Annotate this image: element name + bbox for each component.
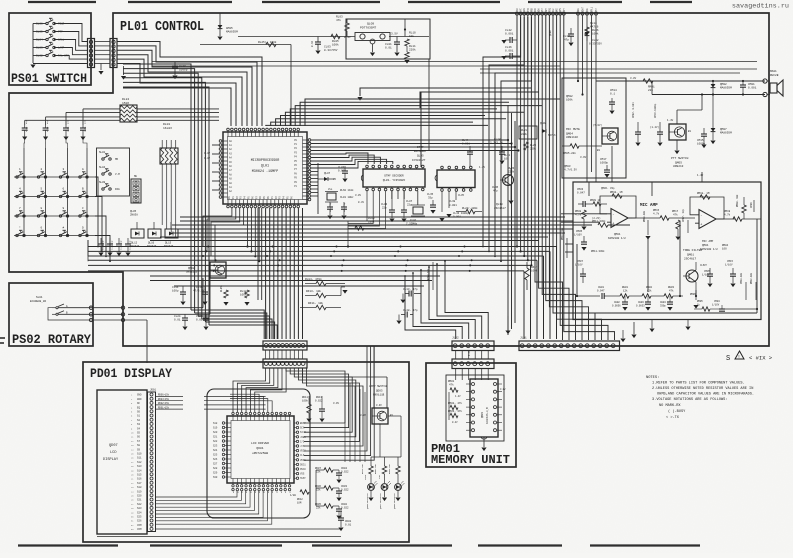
svg-text:0.022: 0.022	[341, 471, 349, 474]
svg-text:S18: S18	[213, 422, 218, 425]
svg-text:1.4V: 1.4V	[667, 119, 674, 122]
svg-text:RL01: RL01	[163, 123, 170, 126]
svg-text:CM07- 33p: CM07- 33p	[682, 209, 685, 222]
svg-text:QD03: QD03	[376, 390, 383, 393]
svg-text:(2.2V): (2.2V)	[592, 217, 601, 220]
svg-text:GND: GND	[137, 394, 142, 397]
svg-text:RM01: RM01	[448, 380, 455, 383]
svg-text:10M: 10M	[297, 502, 302, 505]
svg-text:RD04>15k: RD04>15k	[158, 398, 170, 401]
svg-text:1/16V: 1/16V	[575, 264, 583, 267]
svg-text:RUC2B: RUC2B	[770, 74, 779, 77]
svg-text:S29: S29	[213, 472, 218, 475]
svg-text:1.4V: 1.4V	[455, 395, 461, 398]
svg-text:100p: 100p	[172, 290, 179, 293]
svg-text:S3: S3	[137, 423, 141, 426]
svg-text:CL03: CL03	[338, 166, 345, 169]
svg-text:RD08-150: RD08-150	[388, 464, 391, 474]
svg-text:47p: 47p	[564, 39, 569, 42]
svg-text:QM03: QM03	[564, 165, 571, 168]
svg-text:RM15: RM15	[653, 209, 660, 212]
svg-text:0.001: 0.001	[453, 216, 461, 219]
svg-text:SL01: SL01	[36, 296, 43, 299]
svg-text:RM11-330k: RM11-330k	[591, 250, 605, 253]
svg-text:MA8055M: MA8055M	[720, 87, 732, 90]
svg-text:QL08: QL08	[540, 122, 547, 125]
svg-text:QM08: QM08	[188, 267, 195, 270]
svg-text:PS01 SWITCH: PS01 SWITCH	[11, 72, 87, 86]
svg-text:CM07: CM07	[577, 260, 584, 263]
svg-text:0.047: 0.047	[597, 290, 605, 293]
svg-text:22k: 22k	[316, 489, 321, 492]
svg-text:3.0V: 3.0V	[500, 388, 506, 391]
svg-text:3.5V: 3.5V	[391, 33, 398, 36]
svg-text:0.001: 0.001	[462, 143, 470, 146]
svg-text:3.9V: 3.9V	[333, 402, 340, 405]
svg-text:S27: S27	[213, 463, 218, 466]
svg-text:0.001: 0.001	[449, 204, 457, 207]
svg-text:QL10: QL10	[496, 203, 503, 206]
svg-text:RH01: RH01	[622, 286, 629, 289]
svg-text:MA716: MA716	[548, 134, 556, 137]
svg-text:S22: S22	[137, 503, 142, 506]
svg-text:OSC1: OSC1	[300, 463, 306, 466]
svg-text:DTMF DECODER: DTMF DECODER	[384, 175, 404, 178]
svg-text:3.9V: 3.9V	[580, 156, 587, 159]
svg-text:CL31- 47p: CL31- 47p	[46, 119, 49, 132]
svg-text:CL04 3p: CL04 3p	[343, 202, 346, 212]
svg-text:S23: S23	[137, 507, 142, 510]
svg-text:RH03: RH03	[668, 286, 675, 289]
svg-text:100k: 100k	[531, 269, 538, 273]
svg-text:(1.4V): (1.4V)	[650, 126, 660, 129]
svg-text:RM05: RM05	[697, 300, 703, 303]
svg-text:22p: 22p	[382, 207, 387, 210]
svg-text:RZ13- 10k: RZ13- 10k	[306, 289, 321, 293]
svg-text:CLK: CLK	[300, 454, 305, 457]
svg-text:VSS: VSS	[300, 473, 305, 476]
svg-text:0.0056: 0.0056	[612, 305, 621, 308]
svg-text:MA8055M: MA8055M	[720, 132, 732, 135]
svg-text:RL60 110k: RL60 110k	[340, 189, 354, 192]
svg-text:22k: 22k	[648, 88, 653, 92]
svg-text:100: 100	[722, 248, 727, 251]
svg-text:MA716: MA716	[590, 26, 599, 29]
svg-text:BUSY: BUSY	[300, 422, 306, 425]
svg-text:COM: COM	[137, 528, 142, 531]
svg-text:S21: S21	[213, 436, 218, 439]
svg-text:RL05-: RL05-	[220, 284, 223, 292]
svg-text:S24: S24	[137, 511, 142, 514]
svg-text:DAT: DAT	[582, 6, 585, 11]
svg-text:+: +	[700, 223, 702, 227]
svg-text:220k: 220k	[521, 133, 528, 136]
svg-text:QM01: QM01	[687, 254, 694, 257]
svg-text:100k: 100k	[332, 42, 339, 46]
svg-text:< >-TX: < >-TX	[666, 415, 680, 420]
svg-text:RD12: RD12	[297, 498, 303, 501]
svg-text:QD05-WPS2312S: QD05-WPS2312S	[366, 493, 369, 509]
svg-text:QL03- YC3530ZF: QL03- YC3530ZF	[383, 179, 406, 182]
svg-text:RL21: RL21	[521, 129, 528, 132]
svg-text:QM02: QM02	[566, 95, 573, 98]
svg-text:S22: S22	[213, 440, 218, 443]
svg-text:CL07: CL07	[406, 200, 413, 203]
svg-text:QL07: QL07	[324, 172, 331, 175]
svg-text:UN9111K: UN9111K	[566, 136, 578, 139]
svg-text:CL13- 47p: CL13- 47p	[403, 288, 418, 291]
svg-text:MO: MO	[115, 158, 119, 161]
svg-text:PL01 CONTROL: PL01 CONTROL	[120, 19, 204, 35]
svg-text:10k: 10k	[504, 157, 509, 161]
svg-text:S10: S10	[137, 453, 142, 456]
svg-text:0.33/55V: 0.33/55V	[589, 42, 602, 46]
svg-text:NO MARK-RX: NO MARK-RX	[659, 404, 681, 408]
svg-text:QM01: QM01	[614, 233, 621, 236]
svg-text:0.001: 0.001	[505, 50, 514, 53]
svg-text:SL02: SL02	[36, 55, 43, 58]
svg-text:CM15: CM15	[697, 139, 704, 142]
svg-text:22k: 22k	[316, 471, 321, 474]
svg-text:33p: 33p	[428, 197, 433, 200]
svg-text:NC: NC	[137, 402, 141, 405]
svg-text:CM04: CM04	[714, 300, 720, 303]
svg-text:RM17: RM17	[672, 210, 679, 213]
svg-text:0.01: 0.01	[345, 524, 352, 527]
svg-text:RM05-22k: RM05-22k	[563, 151, 576, 155]
svg-text:SL04: SL04	[36, 39, 43, 42]
svg-text:RM18- 1M: RM18- 1M	[697, 192, 710, 195]
svg-text:22k: 22k	[316, 507, 321, 510]
svg-text:OSC0: OSC0	[300, 468, 306, 471]
svg-text:S7: S7	[137, 440, 141, 443]
svg-text:QD04-WPS2312S: QD04-WPS2312S	[379, 493, 382, 509]
svg-text:-: -	[700, 215, 702, 219]
svg-text:B1: B1	[597, 149, 601, 152]
svg-text:XL01 10Hz: XL01 10Hz	[340, 196, 354, 199]
svg-text:2SC4617: 2SC4617	[684, 258, 696, 261]
svg-text:MIC AMP: MIC AMP	[640, 204, 658, 208]
svg-text:2.UNLESS OTHERWISE NOTED RESIS: 2.UNLESS OTHERWISE NOTED RESISTOR VALUES…	[652, 387, 753, 391]
svg-text:S14: S14	[137, 469, 142, 472]
svg-text:CL44: CL44	[462, 139, 469, 142]
svg-text:CL26: CL26	[196, 315, 203, 318]
svg-text:CL30- 47p: CL30- 47p	[67, 119, 70, 132]
svg-text:( )-BUSY: ( )-BUSY	[668, 409, 686, 414]
svg-text:S0: S0	[137, 411, 141, 414]
svg-text:47p: 47p	[493, 190, 498, 193]
svg-text:S15: S15	[137, 474, 142, 477]
svg-text:0.01: 0.01	[385, 46, 392, 49]
svg-text:V-M: V-M	[115, 173, 120, 176]
svg-text:S21: S21	[137, 499, 142, 502]
svg-text:1000p: 1000p	[600, 162, 608, 165]
svg-text:CL32- 47p: CL32- 47p	[25, 119, 28, 132]
svg-text:CD01: CD01	[345, 520, 352, 523]
svg-text:LAMP: LAMP	[364, 474, 367, 480]
svg-text:1.4V: 1.4V	[479, 166, 486, 169]
svg-text:1/16V: 1/16V	[574, 233, 582, 237]
svg-text:47k: 47k	[669, 290, 674, 293]
svg-text:CL43 1000p: CL43 1000p	[453, 212, 469, 215]
svg-text:PD01 DISPLAY: PD01 DISPLAY	[90, 367, 172, 381]
svg-text:0.022: 0.022	[341, 507, 349, 510]
svg-text:S25: S25	[213, 454, 218, 457]
svg-text:VDD1: VDD1	[300, 459, 306, 462]
svg-text:M30624 -1GMFP: M30624 -1GMFP	[252, 170, 278, 174]
svg-text:1.4V: 1.4V	[697, 174, 704, 177]
svg-text:UN9111J: UN9111J	[186, 271, 198, 274]
svg-text:SI/O: SI/O	[300, 431, 306, 434]
svg-text:3.VOLTAGE NOTATIONS ARE AS FOL: 3.VOLTAGE NOTATIONS ARE AS FOLLOWS:	[652, 398, 727, 402]
svg-text:(5.0V): (5.0V)	[593, 124, 603, 127]
svg-text:UN9111B: UN9111B	[373, 394, 385, 397]
svg-text:RL22(-100k: RL22(-100k	[462, 206, 478, 210]
svg-text:2SC4617: 2SC4617	[494, 207, 506, 210]
svg-text:NJM2100 1/2: NJM2100 1/2	[700, 247, 718, 251]
svg-text:S4: S4	[137, 427, 141, 430]
svg-text:RM08: RM08	[575, 210, 582, 213]
svg-text:OHMS,AND CAPACITOR VALUES ARE: OHMS,AND CAPACITOR VALUES ARE IN MICROFA…	[657, 393, 754, 397]
svg-text:S11: S11	[137, 457, 142, 460]
svg-text:RM04: RM04	[722, 244, 729, 247]
svg-text:100k: 100k	[566, 98, 573, 102]
svg-text:CL28: CL28	[494, 138, 501, 141]
svg-text:JL02: JL02	[452, 337, 459, 340]
svg-text:0.4V: 0.4V	[358, 201, 365, 204]
svg-text:0.4V: 0.4V	[452, 421, 458, 424]
svg-text:47k: 47k	[336, 18, 341, 22]
svg-text:CM13-10k: CM13-10k	[740, 272, 743, 284]
svg-text:RM19: RM19	[724, 210, 731, 213]
svg-text:VDD2: VDD2	[300, 450, 306, 453]
svg-text:QD01: QD01	[256, 447, 263, 450]
svg-text:savagedtins.ru: savagedtins.ru	[732, 3, 789, 11]
svg-text:TONE FILTER: TONE FILTER	[683, 249, 702, 252]
svg-text:B1: B1	[390, 414, 394, 417]
svg-text:LCD: LCD	[378, 474, 381, 479]
svg-text:< #IX >: < #IX >	[749, 355, 772, 362]
svg-text:CH02: CH02	[614, 301, 620, 304]
svg-text:0.047: 0.047	[577, 192, 585, 195]
svg-text:1/16V: 1/16V	[712, 304, 720, 307]
svg-text:S24: S24	[213, 449, 218, 452]
svg-text:CD04: CD04	[341, 467, 348, 470]
svg-text:S23: S23	[213, 445, 218, 448]
svg-text:QM04: QM04	[566, 133, 573, 136]
svg-text:1.4V: 1.4V	[468, 350, 471, 356]
svg-text:MICROPROCESSOR: MICROPROCESSOR	[251, 159, 280, 163]
svg-text:DTMF: DTMF	[417, 146, 424, 149]
svg-text:CM03: CM03	[577, 188, 584, 191]
svg-text:CL45: CL45	[492, 186, 499, 189]
svg-text:RZ00-10k: RZ00-10k	[427, 268, 430, 280]
svg-text:CL30 47p: CL30 47p	[102, 240, 105, 250]
svg-text:0.001: 0.001	[505, 33, 514, 36]
svg-text:RL06: RL06	[592, 29, 599, 32]
svg-text:!: !	[738, 354, 741, 360]
svg-text:-: -	[612, 214, 614, 218]
svg-text:16L0X: 16L0X	[163, 127, 172, 130]
svg-text:0.1: 0.1	[610, 93, 615, 96]
svg-text:S19: S19	[137, 490, 142, 493]
svg-text:QD07: QD07	[109, 444, 118, 448]
svg-text:CL38: CL38	[449, 200, 456, 203]
svg-text:LAMP SWITCH: LAMP SWITCH	[369, 385, 387, 388]
svg-text:QL09: QL09	[367, 23, 374, 26]
svg-text:uPD7225GB: uPD7225GB	[252, 452, 268, 455]
svg-text:RM23- 10k: RM23- 10k	[561, 227, 564, 240]
svg-text:RH02: RH02	[646, 286, 653, 289]
svg-text:S25: S25	[137, 516, 142, 519]
svg-text:NJM2100 1/2: NJM2100 1/2	[608, 236, 626, 240]
svg-text:100k: 100k	[592, 32, 599, 36]
svg-text:RL84- 470k: RL84- 470k	[305, 277, 322, 281]
svg-text:VD: VD	[333, 178, 337, 181]
svg-text:RM13-10k: RM13-10k	[643, 210, 646, 222]
svg-text:QD06-WPS2312S: QD06-WPS2312S	[393, 493, 396, 509]
svg-text:COM: COM	[137, 524, 142, 527]
svg-text:2N838: 2N838	[130, 214, 138, 217]
svg-text:0.01: 0.01	[174, 319, 181, 322]
svg-text:SL01: SL01	[99, 151, 106, 154]
svg-text:UN9213: UN9213	[673, 165, 684, 168]
svg-text:S9: S9	[137, 448, 141, 451]
svg-text:LCD: LCD	[110, 451, 116, 455]
svg-text:EQ: EQ	[137, 406, 141, 409]
svg-text:QL01: QL01	[261, 165, 269, 169]
svg-text:S17: S17	[137, 482, 142, 485]
svg-text:SL05: SL05	[36, 31, 43, 34]
svg-text:1.4V: 1.4V	[204, 152, 211, 155]
svg-text:S1: S1	[137, 415, 141, 418]
svg-text:NOTES:: NOTES:	[646, 376, 659, 380]
svg-text:PAG: PAG	[115, 188, 120, 191]
svg-text:QM05: QM05	[675, 162, 682, 165]
svg-text:RL31: RL31	[504, 154, 511, 157]
svg-text:S20: S20	[213, 431, 218, 434]
svg-text:B1: B1	[688, 130, 692, 133]
svg-text:CL06: CL06	[381, 203, 388, 206]
svg-text:CL39- 47p: CL39- 47p	[84, 119, 87, 132]
svg-text:CM09: CM09	[750, 202, 753, 208]
svg-text:S5: S5	[137, 432, 141, 435]
svg-text:/CS: /CS	[300, 445, 305, 448]
svg-text:0.01: 0.01	[196, 319, 203, 322]
svg-text:CL36: CL36	[196, 286, 203, 289]
svg-text:RD01>15k: RD01>15k	[158, 406, 170, 409]
svg-text:CM05: CM05	[704, 270, 711, 273]
svg-text:XL01: XL01	[410, 219, 417, 222]
svg-text:S30: S30	[213, 476, 218, 479]
svg-text:RZ17: RZ17	[531, 266, 538, 269]
svg-text:RL26: RL26	[508, 167, 515, 170]
svg-text:S2: S2	[137, 419, 141, 422]
svg-text:S18: S18	[137, 486, 142, 489]
svg-text:MEMORY UNIT: MEMORY UNIT	[431, 454, 510, 467]
svg-text:MIC AMP: MIC AMP	[702, 240, 714, 243]
svg-text:0.001: 0.001	[748, 87, 757, 90]
svg-text:0.1F: 0.1F	[311, 40, 314, 47]
svg-text:RD11: RD11	[302, 396, 309, 399]
svg-text:PLL: PLL	[591, 6, 594, 11]
svg-text:S12: S12	[137, 461, 142, 464]
svg-text:QL05: QL05	[130, 210, 137, 213]
svg-text:RD10-150: RD10-150	[361, 464, 364, 474]
svg-text:SL04: SL04	[99, 166, 106, 169]
svg-text:RM12-10k: RM12-10k	[750, 272, 753, 284]
svg-text:100k: 100k	[302, 400, 309, 403]
svg-text:CL50?: CL50?	[700, 264, 708, 267]
svg-text:S16: S16	[137, 478, 142, 481]
svg-text:S8: S8	[137, 444, 141, 447]
svg-text:/RES: /RES	[300, 436, 306, 439]
svg-text:CL35: CL35	[458, 194, 465, 197]
svg-text:CL35: CL35	[427, 193, 434, 196]
svg-text:RD02>15k: RD02>15k	[158, 402, 170, 405]
svg-text:0.33/55V: 0.33/55V	[324, 48, 338, 52]
svg-text:330p: 330p	[660, 305, 666, 308]
svg-text:10k: 10k	[409, 34, 414, 38]
svg-text:RM09 1k: RM09 1k	[590, 199, 601, 202]
svg-text:RL20: RL20	[530, 144, 537, 147]
svg-text:EC09E08_06: EC09E08_06	[30, 300, 47, 303]
svg-text:SL09: SL09	[99, 181, 106, 184]
svg-text:JD01: JD01	[150, 389, 157, 392]
svg-text:MIC MUTE: MIC MUTE	[566, 128, 580, 131]
svg-text:RM20- 10k: RM20- 10k	[736, 194, 739, 207]
svg-text:QM07: QM07	[720, 128, 727, 131]
svg-text:RL09: RL09	[368, 217, 375, 220]
svg-text:0.0033: 0.0033	[636, 305, 645, 308]
svg-text:CM15: CM15	[727, 260, 734, 263]
svg-text:MA01: MA01	[770, 70, 777, 73]
svg-text:RZ11- 10k: RZ11- 10k	[308, 301, 323, 305]
svg-text:S6: S6	[137, 436, 141, 439]
svg-text:2.3/5.3V: 2.3/5.3V	[490, 141, 503, 145]
svg-text:1/16V: 1/16V	[725, 264, 733, 267]
svg-text:C/D: C/D	[300, 440, 305, 443]
svg-text:QL05: QL05	[417, 155, 424, 158]
svg-text:47k: 47k	[449, 383, 454, 387]
svg-text:SL06: SL06	[36, 23, 43, 26]
svg-text:LCD DRIVER: LCD DRIVER	[251, 442, 269, 445]
svg-text:CL31 47p: CL31 47p	[111, 240, 114, 250]
svg-text:S28: S28	[213, 467, 218, 470]
svg-text:4.7/6.3V: 4.7/6.3V	[564, 168, 577, 172]
svg-text:CL32 47p: CL32 47p	[120, 240, 123, 250]
svg-text:QM02: QM02	[720, 83, 727, 86]
svg-text:CH04: CH04	[660, 301, 666, 304]
svg-text:CM02- 0.001: CM02- 0.001	[632, 102, 635, 118]
svg-text:S26: S26	[137, 520, 142, 523]
svg-text:CD02: CD02	[341, 503, 348, 506]
svg-text:4.7k: 4.7k	[575, 213, 582, 217]
svg-text:RD07: RD07	[315, 467, 322, 470]
svg-text:RD09-150: RD09-150	[374, 464, 377, 474]
svg-text:CL02: CL02	[592, 39, 599, 42]
svg-text:220k: 220k	[508, 170, 515, 174]
svg-text:JL01: JL01	[520, 337, 527, 340]
svg-text:Vss: Vss	[328, 188, 333, 191]
svg-text:CD03: CD03	[341, 485, 348, 488]
svg-text:12k: 12k	[623, 290, 628, 293]
svg-text:S: S	[726, 355, 730, 363]
svg-text:3.9V: 3.9V	[360, 414, 367, 417]
svg-text:FC5031ZT: FC5031ZT	[412, 159, 426, 162]
svg-text:CM05: CM05	[576, 230, 583, 233]
svg-text:POT703GMT: POT703GMT	[360, 27, 376, 30]
